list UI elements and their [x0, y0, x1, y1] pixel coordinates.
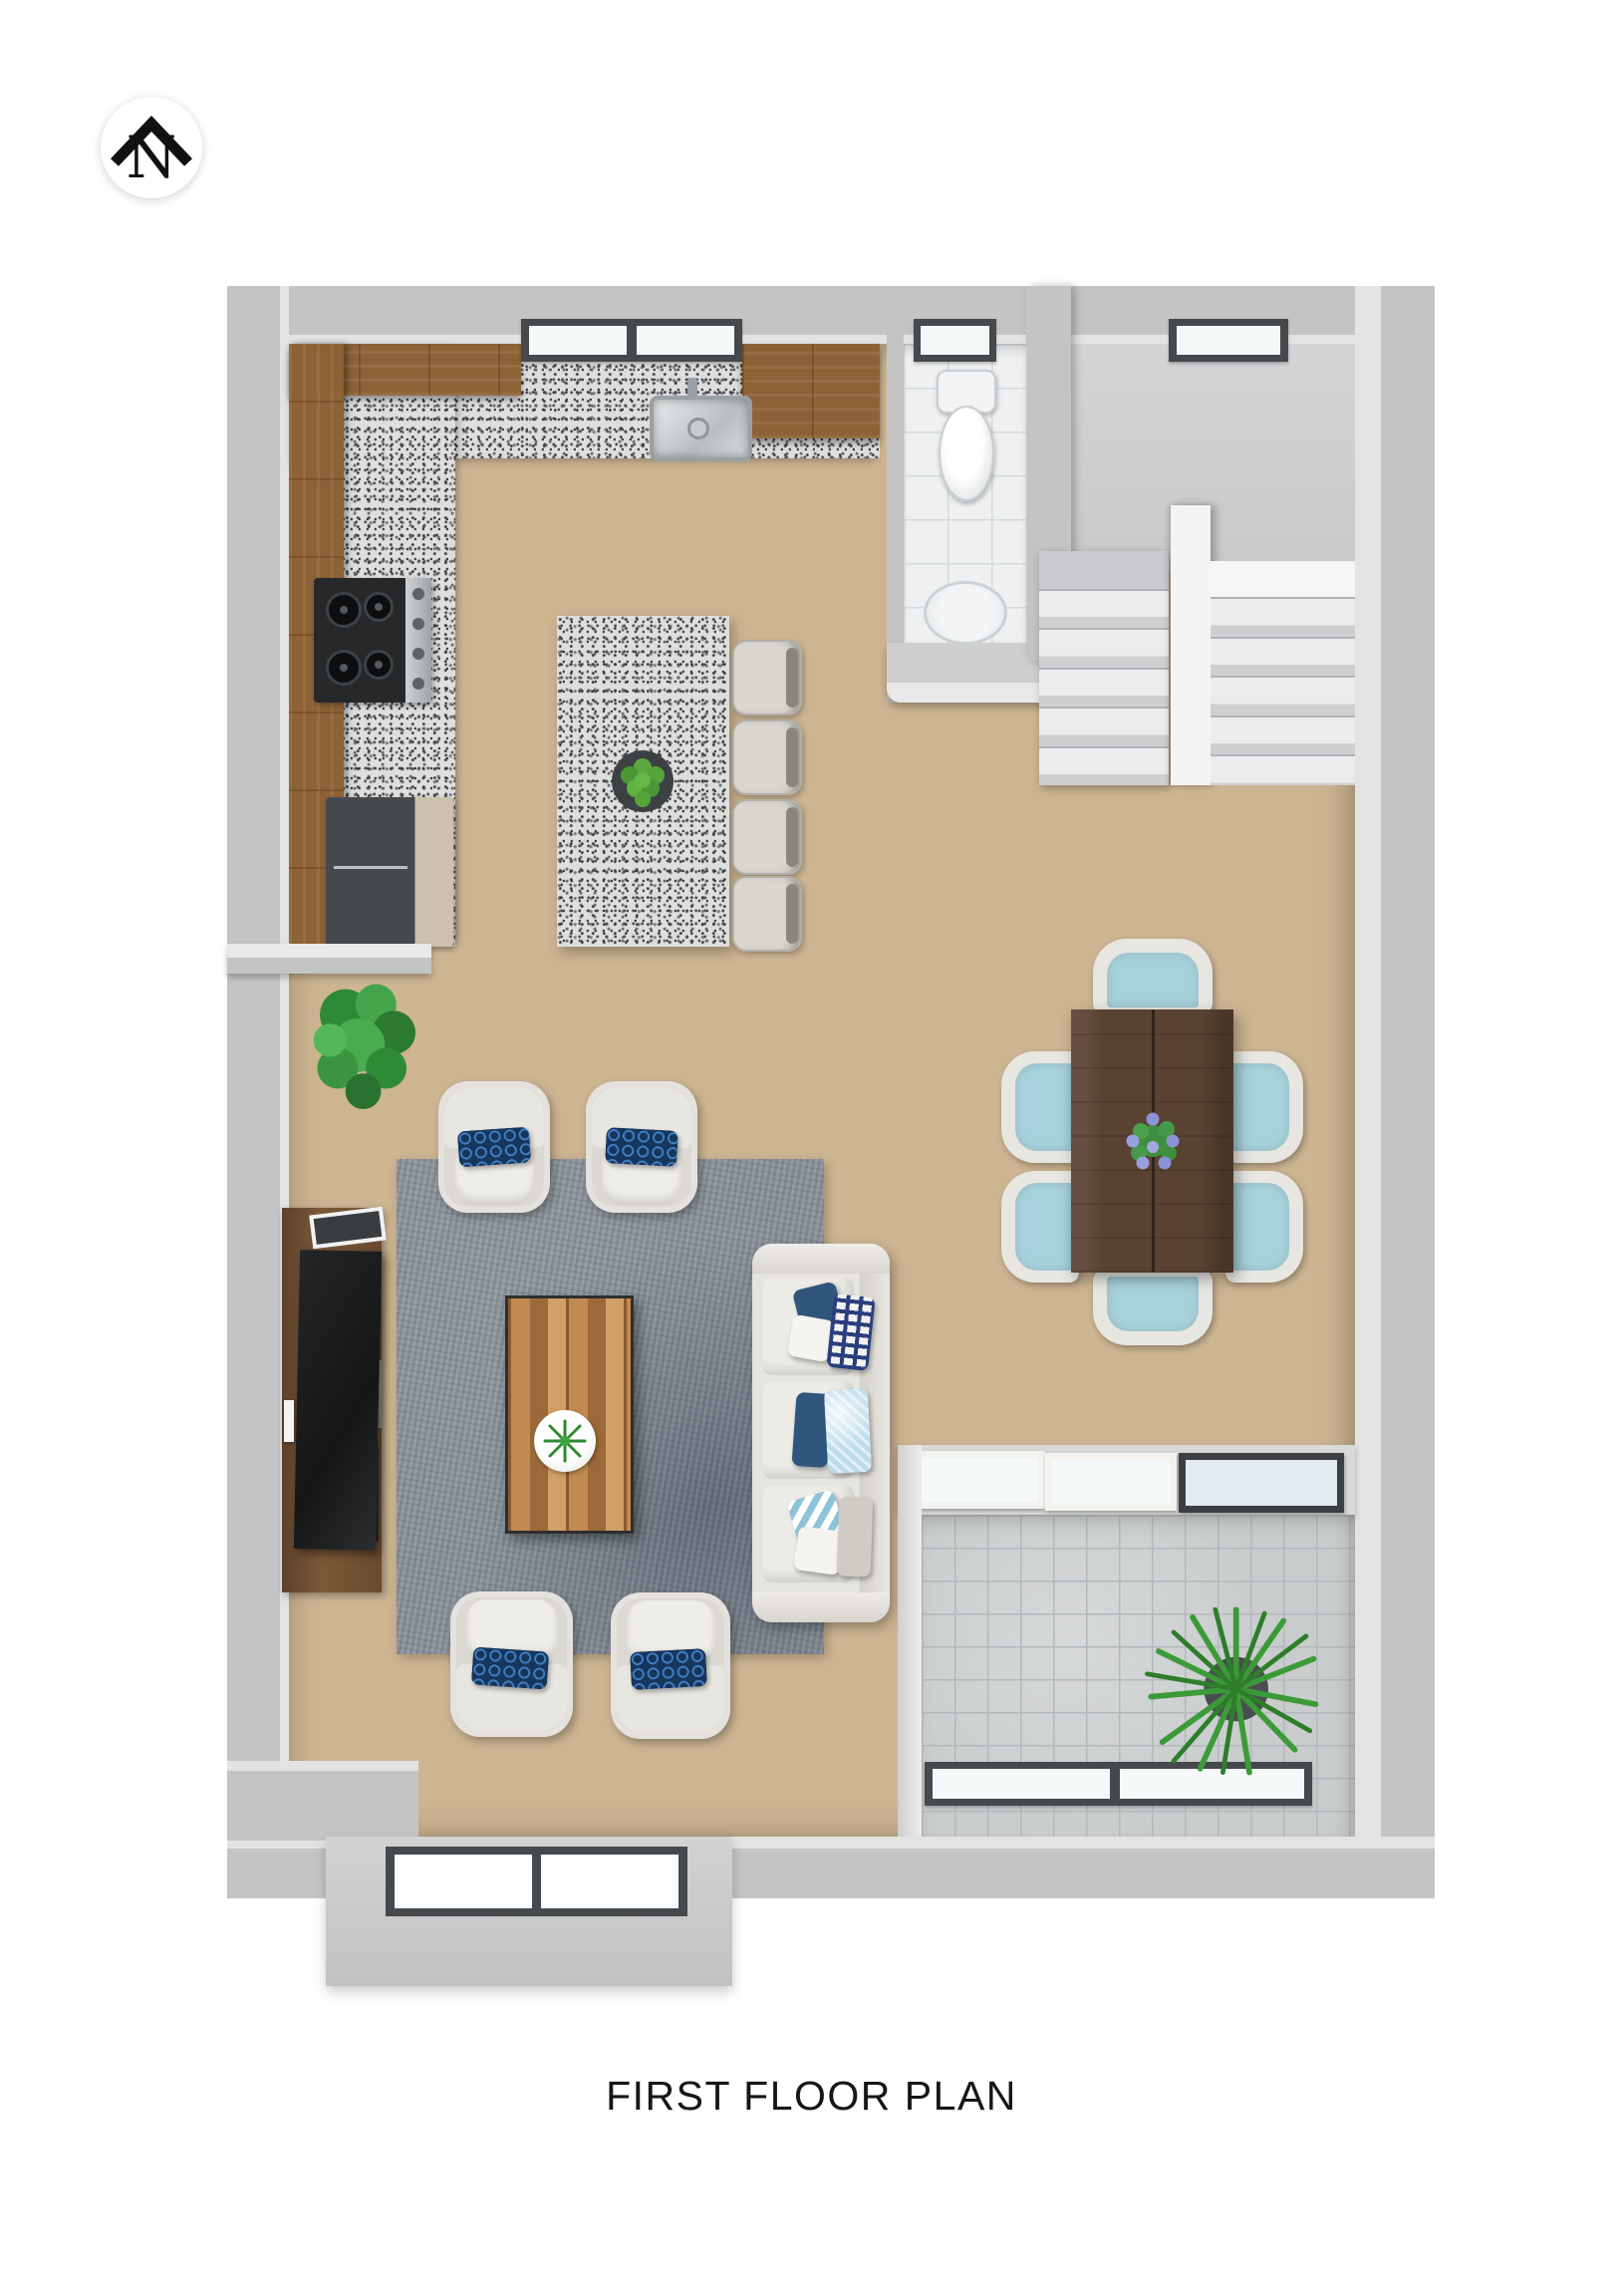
stair-tread: [1211, 599, 1355, 639]
dining-chair: [1093, 1271, 1213, 1345]
stair-flight-up: [1039, 551, 1169, 785]
flower-centerpiece-icon: [1119, 1107, 1187, 1175]
page-title: FIRST FLOOR PLAN: [0, 2073, 1623, 2120]
armchair: [450, 1591, 573, 1737]
throw-pillow: [826, 1293, 876, 1371]
bathroom-window: [914, 319, 996, 362]
burner-icon: [326, 592, 362, 628]
floor-plan: [227, 286, 1435, 1898]
succulent-icon: [540, 1416, 590, 1466]
stair-tread: [1039, 709, 1169, 748]
sliding-glass-door: [898, 1445, 1355, 1515]
stove-knob-icon: [412, 618, 424, 630]
stair-flight-down: [1211, 561, 1355, 785]
bar-stool: [732, 640, 802, 716]
bar-stool: [732, 799, 802, 875]
dining-chair: [1093, 939, 1213, 1013]
console-handle-icon: [284, 1400, 294, 1442]
throw-pillow: [837, 1496, 874, 1577]
stair-landing: [1071, 344, 1355, 573]
throw-pillow: [605, 1127, 678, 1167]
stair-tread: [1211, 717, 1355, 757]
stair-tread: [1211, 756, 1355, 785]
stove-knob-icon: [412, 588, 424, 600]
wall-left: [227, 286, 289, 1898]
refrigerator: [326, 797, 453, 947]
bar-stool: [732, 876, 802, 952]
floor-plan-page: { "page": { "title": "FIRST FLOOR PLAN",…: [0, 0, 1623, 2296]
armchair: [586, 1081, 697, 1213]
stair-tread: [1039, 551, 1169, 591]
burner-icon: [326, 650, 362, 686]
stair-tread: [1039, 591, 1169, 631]
shower-pan: [924, 581, 1007, 645]
throw-pillow: [824, 1388, 872, 1474]
grass-plant-icon: [1136, 1594, 1325, 1784]
stair-tread: [1039, 670, 1169, 710]
throw-pillow: [457, 1127, 531, 1168]
stair-tread: [1211, 678, 1355, 717]
dining-chair: [1001, 1051, 1079, 1163]
dining-chair: [1225, 1171, 1303, 1283]
toilet: [939, 406, 994, 501]
north-compass: N: [101, 97, 202, 198]
stair-tread: [1039, 630, 1169, 670]
armchair: [611, 1592, 730, 1739]
stove-control-panel: [406, 578, 431, 703]
kitchen-tall-cabinet: [742, 344, 880, 438]
stair-tread: [1039, 748, 1169, 786]
door-pane: [914, 1451, 1045, 1509]
stair-tread: [1211, 561, 1355, 599]
stair-divider-wall: [1171, 505, 1211, 785]
bar-stool: [732, 719, 802, 795]
stairwell-window: [1169, 319, 1288, 362]
stove-cooktop: [314, 578, 431, 703]
dining-chair: [1001, 1171, 1079, 1283]
wall-kitchen-stub: [227, 944, 431, 974]
kitchen-window: [521, 319, 742, 362]
burner-icon: [364, 592, 394, 622]
wall-patio-left: [898, 1445, 922, 1837]
living-room-window: [386, 1847, 687, 1916]
faucet-icon: [687, 378, 697, 400]
door-pane: [1179, 1453, 1344, 1513]
compass-north-label: N: [101, 123, 202, 192]
wall-bathroom-left: [887, 286, 904, 703]
fruit-bowl-icon: [610, 748, 676, 814]
sink-drain-icon: [687, 418, 709, 439]
stove-knob-icon: [412, 648, 424, 660]
throw-pillow: [471, 1646, 549, 1689]
tv-screen: [294, 1250, 382, 1551]
armchair: [438, 1081, 550, 1213]
door-pane: [1045, 1453, 1177, 1511]
wall-corner-bottom-left: [227, 1761, 418, 1841]
wall-right: [1355, 286, 1435, 1898]
burner-icon: [364, 650, 394, 680]
potted-plant-icon: [297, 979, 424, 1126]
throw-pillow: [630, 1648, 707, 1690]
sofa: [752, 1244, 890, 1622]
stove-knob-icon: [412, 678, 424, 690]
dining-chair: [1225, 1051, 1303, 1163]
stair-tread: [1211, 639, 1355, 679]
